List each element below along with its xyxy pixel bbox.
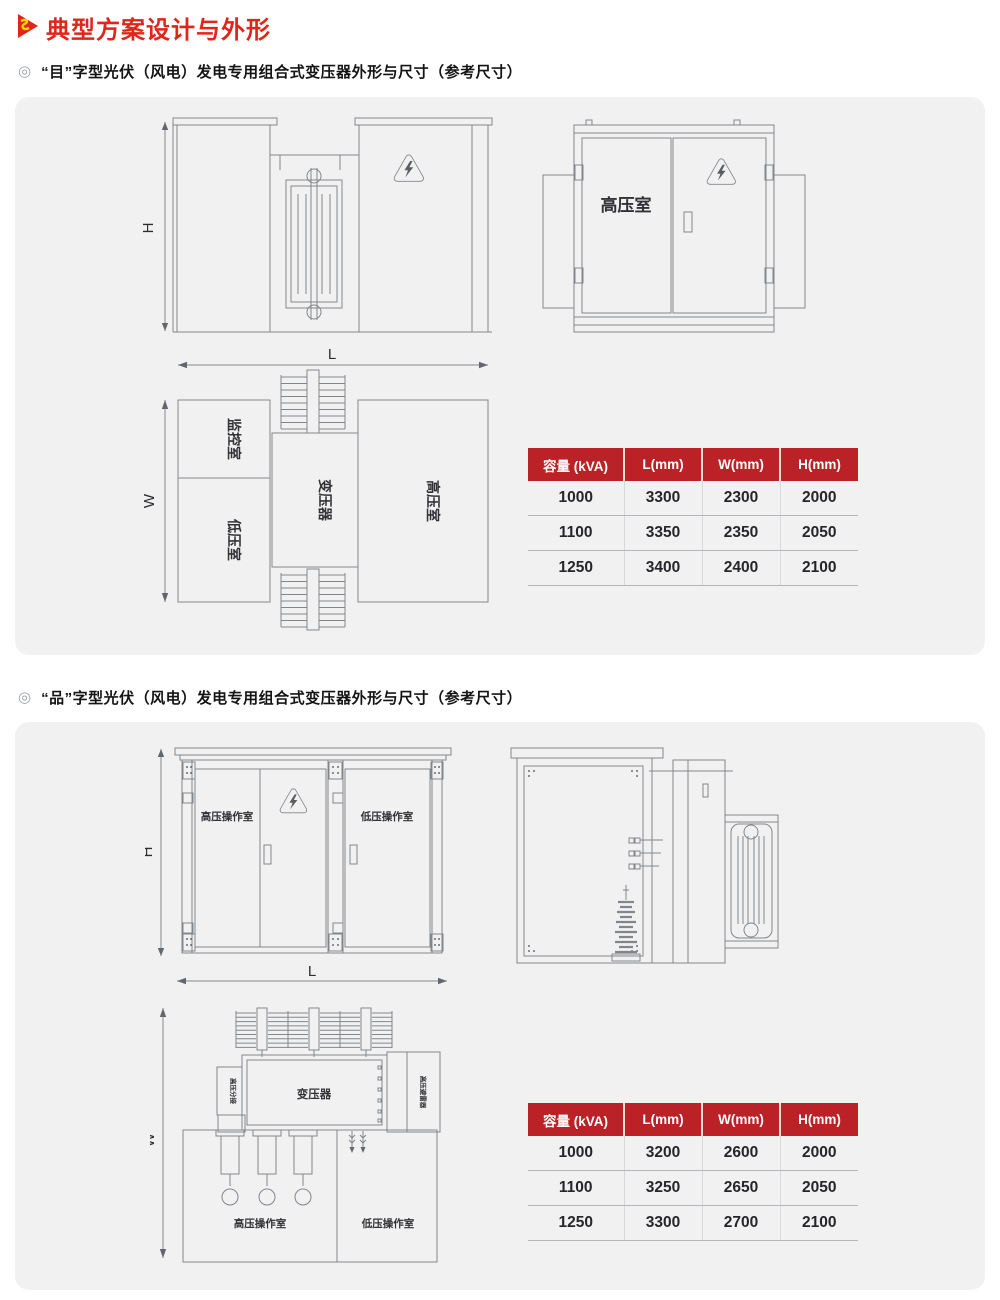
door-handle — [350, 845, 357, 864]
corner-bracket — [183, 934, 195, 951]
mu-top-view-drawing: L W 监控室 低压室 变压器 高压室 — [140, 345, 500, 640]
dim-l-label: L — [308, 963, 316, 980]
warning-lightning-icon — [394, 155, 423, 181]
corner-bracket — [431, 934, 443, 951]
dim-w-label: W — [150, 1132, 158, 1147]
insulator-stack — [615, 902, 637, 952]
table-row: 1250 3400 2400 2100 — [528, 551, 858, 586]
section-1-title: “目”字型光伏（风电）发电专用组合式变压器外形与尺寸（参考尺寸） — [41, 61, 522, 82]
mu-dimension-table: 容量 (kVA) L(mm) W(mm) H(mm) 1000 3300 230… — [528, 448, 858, 586]
cell: 2700 — [702, 1206, 780, 1241]
cell: 1250 — [528, 1206, 624, 1241]
cell: 2050 — [780, 516, 858, 551]
right-door — [345, 769, 430, 947]
table-header-capacity: 容量 (kVA) — [528, 448, 624, 481]
table-header-l: L(mm) — [624, 1103, 702, 1136]
cell: 2000 — [780, 481, 858, 516]
cell: 2350 — [702, 516, 780, 551]
table-row: 1000 3300 2300 2000 — [528, 481, 858, 516]
mu-door-view-lines — [543, 120, 805, 332]
dim-h-label: H — [145, 847, 156, 858]
cell: 3250 — [624, 1171, 702, 1206]
left-side-label: 高压分接 — [229, 1078, 238, 1105]
dim-l-label: L — [328, 346, 336, 363]
pin-top-view-drawing: W 变压器 高压分接 高压避雷器 高压操作室 低压操作室 — [150, 1000, 450, 1290]
cell: 1100 — [528, 1171, 624, 1206]
lv-room-label: 低压室 — [226, 518, 242, 561]
monitor-room-label: 监控室 — [226, 418, 242, 460]
cell: 1100 — [528, 516, 624, 551]
warning-lightning-icon — [707, 159, 735, 185]
cell: 2650 — [702, 1171, 780, 1206]
table-header-l: L(mm) — [624, 448, 702, 481]
mu-front-view-lines — [165, 118, 492, 332]
pin-front-view-drawing: H L 高压操作室 低压操作室 — [145, 740, 470, 990]
cell: 2050 — [780, 1171, 858, 1206]
right-side-box — [387, 1052, 440, 1132]
cell: 2100 — [780, 1206, 858, 1241]
cell: 3300 — [624, 481, 702, 516]
pin-side-view-drawing — [503, 740, 793, 970]
top-fin-duct — [307, 370, 319, 433]
mu-front-view-drawing: H — [140, 108, 520, 348]
radiator-fin-group — [236, 1008, 288, 1057]
left-door — [582, 138, 671, 313]
transformer-label: 变压器 — [297, 1087, 332, 1101]
section-1-heading: ◎ “目”字型光伏（风电）发电专用组合式变压器外形与尺寸（参考尺寸） — [18, 61, 522, 82]
corner-bracket — [431, 762, 443, 779]
pin-front-view-lines — [161, 748, 451, 981]
table-header-h: H(mm) — [780, 1103, 858, 1136]
right-side-label: 高压避雷器 — [419, 1076, 428, 1109]
bullet-icon: ◎ — [18, 690, 31, 705]
section-2-heading: ◎ “品”字型光伏（风电）发电专用组合式变压器外形与尺寸（参考尺寸） — [18, 687, 522, 708]
page-title: 典型方案设计与外形 — [46, 10, 271, 45]
cell: 2600 — [702, 1136, 780, 1171]
cell: 1000 — [528, 481, 624, 516]
cell: 1250 — [528, 551, 624, 586]
cell: 3400 — [624, 551, 702, 586]
table-header-w: W(mm) — [702, 1103, 780, 1136]
hv-room-label: 高压室 — [425, 480, 441, 522]
table-header-w: W(mm) — [702, 448, 780, 481]
cell: 2100 — [780, 551, 858, 586]
door-handle — [684, 212, 692, 232]
hv-operation-room-label: 高压操作室 — [201, 810, 254, 823]
radiator — [725, 815, 778, 948]
section-2-title: “品”字型光伏（风电）发电专用组合式变压器外形与尺寸（参考尺寸） — [41, 687, 522, 708]
warning-lightning-icon — [280, 789, 307, 813]
radiator-fin-group — [288, 1008, 340, 1057]
table-row: 1100 3350 2350 2050 — [528, 516, 858, 551]
pin-side-view-lines — [511, 748, 778, 963]
cell: 3200 — [624, 1136, 702, 1171]
cell: 2400 — [702, 551, 780, 586]
dim-h-label: H — [140, 223, 157, 234]
cell: 2000 — [780, 1136, 858, 1171]
hv-room-door-label: 高压室 — [601, 195, 652, 215]
section-arrow-icon — [16, 13, 40, 39]
cell: 1000 — [528, 1136, 624, 1171]
corner-bracket — [183, 762, 195, 779]
mu-door-view-drawing: 高压室 — [538, 108, 838, 348]
lv-operation-room-label: 低压操作室 — [360, 810, 414, 823]
radiator — [286, 180, 342, 308]
hv-operation-room-label: 高压操作室 — [234, 1217, 287, 1230]
radiator-fin-group — [340, 1008, 392, 1057]
transformer-label: 变压器 — [317, 479, 333, 522]
corner-bracket — [329, 934, 342, 951]
cell: 3300 — [624, 1206, 702, 1241]
door-handle — [264, 845, 271, 864]
table-row: 1000 3200 2600 2000 — [528, 1136, 858, 1171]
table-row: 1100 3250 2650 2050 — [528, 1171, 858, 1206]
table-header-h: H(mm) — [780, 448, 858, 481]
bullet-icon: ◎ — [18, 64, 31, 79]
pin-dimension-table: 容量 (kVA) L(mm) W(mm) H(mm) 1000 3200 260… — [528, 1103, 858, 1241]
right-door — [673, 138, 766, 313]
lv-operation-room-label: 低压操作室 — [361, 1217, 415, 1230]
cell: 3350 — [624, 516, 702, 551]
dim-w-label: W — [141, 493, 158, 508]
bottom-fin-duct — [307, 569, 319, 630]
cell: 2300 — [702, 481, 780, 516]
table-header-capacity: 容量 (kVA) — [528, 1103, 624, 1136]
corner-bracket — [329, 762, 342, 779]
table-row: 1250 3300 2700 2100 — [528, 1206, 858, 1241]
